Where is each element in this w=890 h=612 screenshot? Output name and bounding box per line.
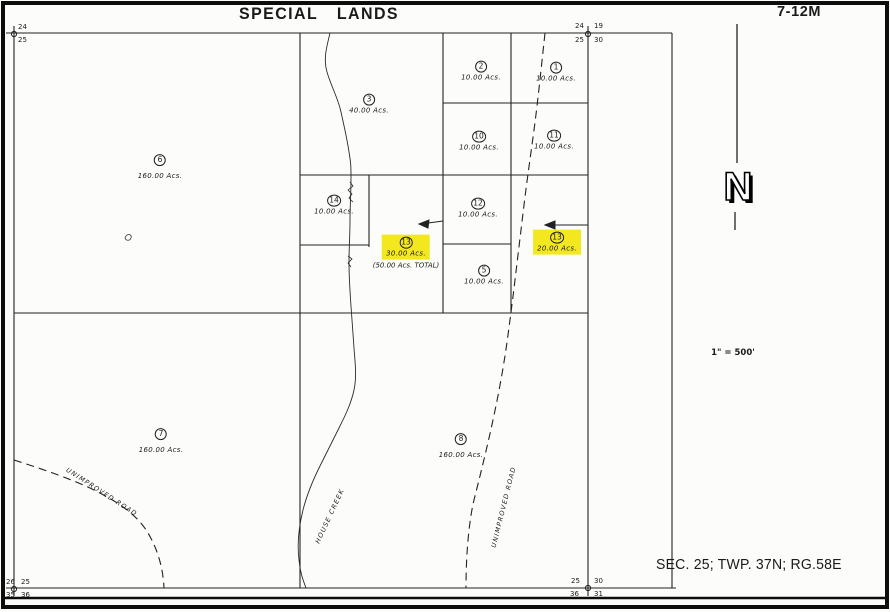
- parcel-number: 10: [472, 130, 486, 142]
- parcel-acreage: 160.00 Acs.: [139, 447, 184, 454]
- parcel-acreage: 160.00 Acs.: [439, 452, 484, 459]
- leader-arrow-parcel13-west: [419, 220, 443, 228]
- north-arrow: N N: [724, 24, 756, 230]
- parcel-label-5: 510.00 Acs.: [460, 261, 508, 288]
- parcel-number: 13: [399, 236, 413, 248]
- parcel-label-1: 110.00 Acs.: [532, 58, 580, 85]
- corner-tl-south: 25: [18, 37, 27, 44]
- highlight-13-west: 1330.00 Acs.: [382, 234, 430, 259]
- parcel-number: 2: [475, 60, 487, 72]
- parcel-number: 3: [363, 93, 375, 105]
- parcel-label-2: 210.00 Acs.: [457, 57, 505, 84]
- parcel-number: 8: [455, 433, 467, 445]
- corner-br-ne: 30: [594, 578, 603, 585]
- parcel-acreage: 30.00 Acs.: [386, 250, 426, 257]
- parcel-acreage: 10.00 Acs.: [464, 278, 504, 285]
- scale-note: 1" = 500': [711, 348, 755, 358]
- highlight-13-east: 1320.00 Acs.: [533, 229, 581, 254]
- corner-tr-ne: 19: [594, 23, 603, 30]
- corner-bl-ne: 25: [21, 579, 30, 586]
- parcel-total-note: (50.00 Acs. TOTAL): [373, 262, 440, 269]
- corner-br-nw: 25: [571, 578, 580, 585]
- parcel-acreage: 10.00 Acs.: [534, 143, 574, 150]
- parcel-label-13-east: 1320.00 Acs.: [533, 228, 581, 255]
- parcel-label-7: 7160.00 Acs.: [135, 424, 188, 456]
- parcel-number: 13: [550, 231, 564, 243]
- sheet-number: 7-12M: [777, 4, 821, 20]
- parcel-label-12: 1210.00 Acs.: [454, 194, 502, 221]
- parcel-label-6: 6160.00 Acs.: [134, 150, 187, 182]
- page-title: SPECIAL LANDS: [239, 4, 399, 24]
- parcel-acreage: 10.00 Acs.: [461, 74, 501, 81]
- parcel-label-3: 340.00 Acs.: [345, 90, 393, 117]
- parcel-label-13-west: 1330.00 Acs. (50.00 Acs. TOTAL): [373, 233, 440, 270]
- parcel-number: 1: [550, 61, 562, 73]
- corner-tr-nw: 24: [575, 23, 584, 30]
- corner-tl-north: 24: [18, 24, 27, 31]
- parcel-acreage: 40.00 Acs.: [349, 107, 389, 114]
- parcel-acreage: 10.00 Acs.: [459, 144, 499, 151]
- plat-linework: N N: [0, 0, 890, 612]
- parcel-label-10: 1010.00 Acs.: [455, 127, 503, 154]
- parcel-acreage: 160.00 Acs.: [138, 173, 183, 180]
- corner-br-se: 31: [594, 591, 603, 598]
- parcel-number: 6: [154, 154, 166, 166]
- corner-bl-nw: 26: [6, 579, 15, 586]
- corner-tr-se: 30: [594, 37, 603, 44]
- parcel-number: 7: [155, 428, 167, 440]
- plat-sheet: N N SPECIAL LANDS 7-12M 210.00 Acs. 110.…: [0, 0, 890, 612]
- parcel-acreage: 10.00 Acs.: [536, 75, 576, 82]
- corner-bl-se: 36: [21, 592, 30, 599]
- parcel-number: 14: [327, 194, 341, 206]
- parcel-acreage: 10.00 Acs.: [314, 208, 354, 215]
- legal-description: SEC. 25; TWP. 37N; RG.58E: [656, 557, 842, 573]
- parcel-acreage: 10.00 Acs.: [458, 211, 498, 218]
- parcel-label-11: 1110.00 Acs.: [530, 126, 578, 153]
- parcel-number: 11: [547, 129, 561, 141]
- corner-tr-sw: 25: [575, 37, 584, 44]
- parcel-acreage: 20.00 Acs.: [537, 245, 577, 252]
- parcel-number: 12: [471, 197, 485, 209]
- corner-br-sw: 36: [570, 591, 579, 598]
- corner-bl-sw: 35: [6, 592, 15, 599]
- parcel-number: 5: [478, 264, 490, 276]
- parcel-label-8: 8160.00 Acs.: [435, 429, 488, 461]
- scan-blemish: [125, 235, 131, 241]
- parcel-label-14: 1410.00 Acs.: [310, 191, 358, 218]
- north-letter: N: [724, 165, 753, 209]
